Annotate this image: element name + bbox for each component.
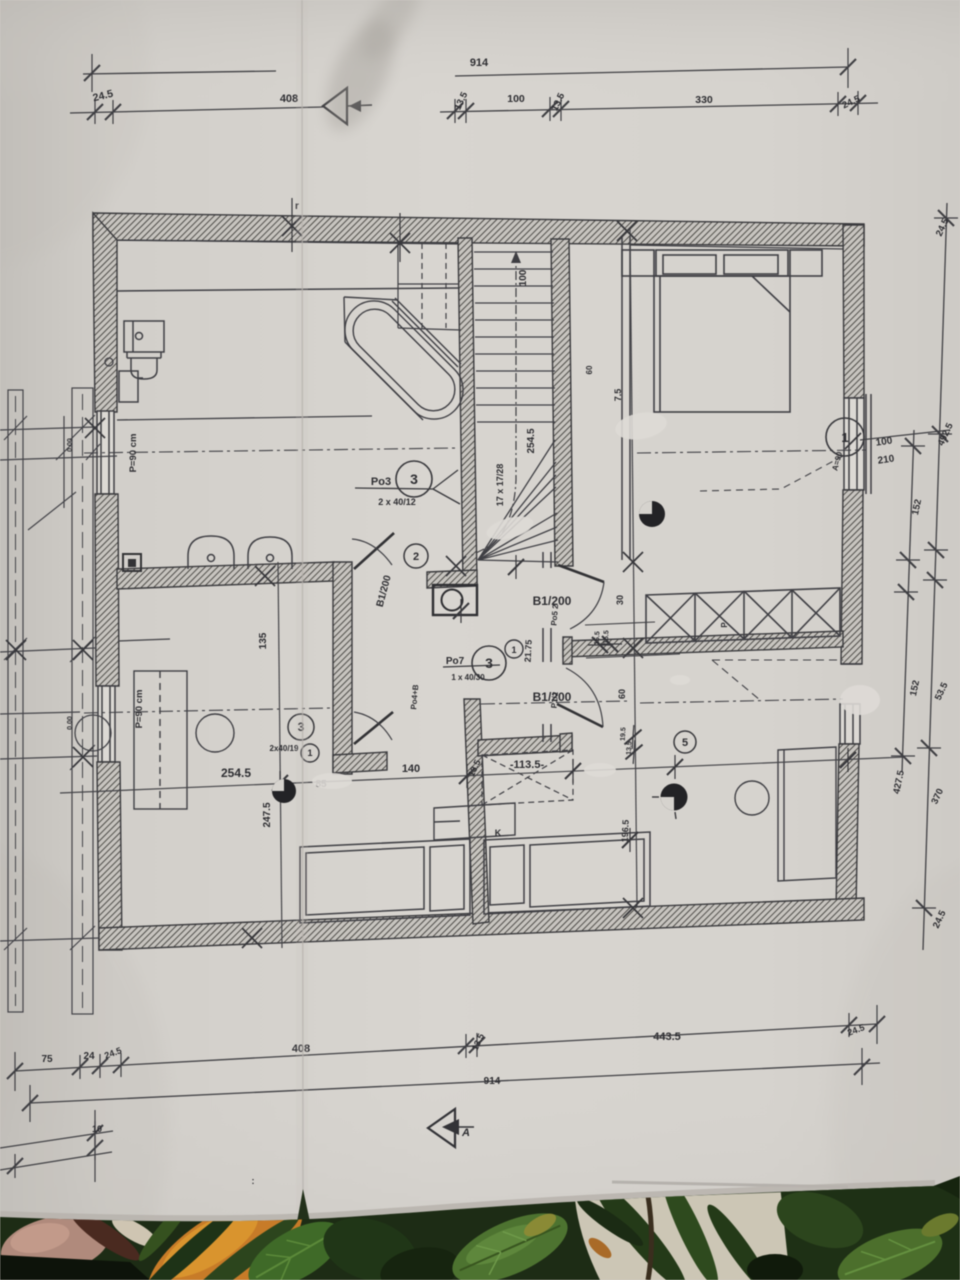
svg-text:100: 100 [507,93,525,105]
svg-text:247.5: 247.5 [262,802,273,827]
svg-text:2: 2 [413,551,419,563]
svg-text:21.75: 21.75 [523,639,534,662]
svg-text:P1/2: P1/2 [550,691,560,709]
svg-text:0.00: 0.00 [67,438,74,452]
svg-text:24: 24 [83,1051,95,1062]
svg-text:P=90 cm: P=90 cm [134,690,145,729]
svg-text:330: 330 [695,94,713,106]
svg-text:1: 1 [511,645,516,655]
svg-text:P: P [720,622,729,628]
svg-text:196.5: 196.5 [620,819,631,842]
svg-text:60: 60 [585,365,594,374]
svg-text:3: 3 [485,655,493,671]
svg-text:30: 30 [615,595,625,605]
svg-text:7.5: 7.5 [613,389,623,402]
svg-text:3: 3 [410,471,418,487]
svg-text:15.5: 15.5 [603,630,611,644]
svg-text:Po3: Po3 [371,476,391,488]
svg-text:140: 140 [402,763,420,775]
svg-text:A: A [461,1127,470,1139]
svg-text:0.00: 0.00 [67,716,74,730]
svg-text:914: 914 [484,1076,501,1087]
svg-text:100: 100 [518,269,529,286]
svg-text:13.5: 13.5 [626,741,634,755]
svg-text:10: 10 [92,1124,102,1134]
svg-text:75: 75 [41,1054,53,1065]
svg-text:K: K [495,828,502,838]
svg-text:15.5: 15.5 [594,631,602,645]
svg-text:17 x 17/28: 17 x 17/28 [495,464,505,507]
svg-text:19.5: 19.5 [620,727,628,741]
svg-text:60: 60 [617,689,627,699]
svg-text:Po7: Po7 [446,656,465,667]
svg-text:1: 1 [307,748,312,758]
svg-text:Po5 2: Po5 2 [549,603,560,626]
svg-text:254.5: 254.5 [526,428,537,453]
svg-text:2x40/19: 2x40/19 [270,744,299,753]
svg-text:P=90 cm: P=90 cm [128,434,139,473]
svg-text:254.5: 254.5 [221,766,251,780]
svg-text:1 x 40/30: 1 x 40/30 [451,673,485,682]
svg-text:-113.5-: -113.5- [510,759,545,771]
svg-text:2 x 40/12: 2 x 40/12 [378,497,416,507]
svg-text:5: 5 [682,737,688,749]
svg-text::: : [252,1176,255,1186]
svg-text:1: 1 [841,430,848,445]
svg-text:135: 135 [258,632,269,649]
svg-text:914: 914 [470,57,489,69]
svg-text:443.5: 443.5 [653,1031,681,1043]
svg-text:408: 408 [280,93,298,105]
